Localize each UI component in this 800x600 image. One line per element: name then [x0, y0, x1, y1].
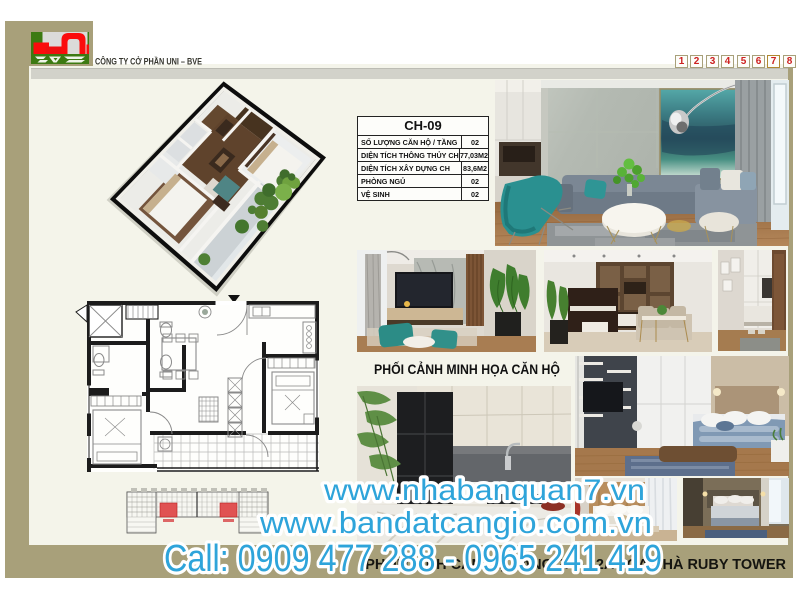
- svg-text:www.nhabanquan7.vn: www.nhabanquan7.vn: [323, 474, 645, 507]
- svg-text:www.bandatcangio.com.vn: www.bandatcangio.com.vn: [259, 505, 652, 540]
- svg-text:Call: 0909 477 288 - 0965 241: Call: 0909 477 288 - 0965 241 419: [164, 538, 662, 580]
